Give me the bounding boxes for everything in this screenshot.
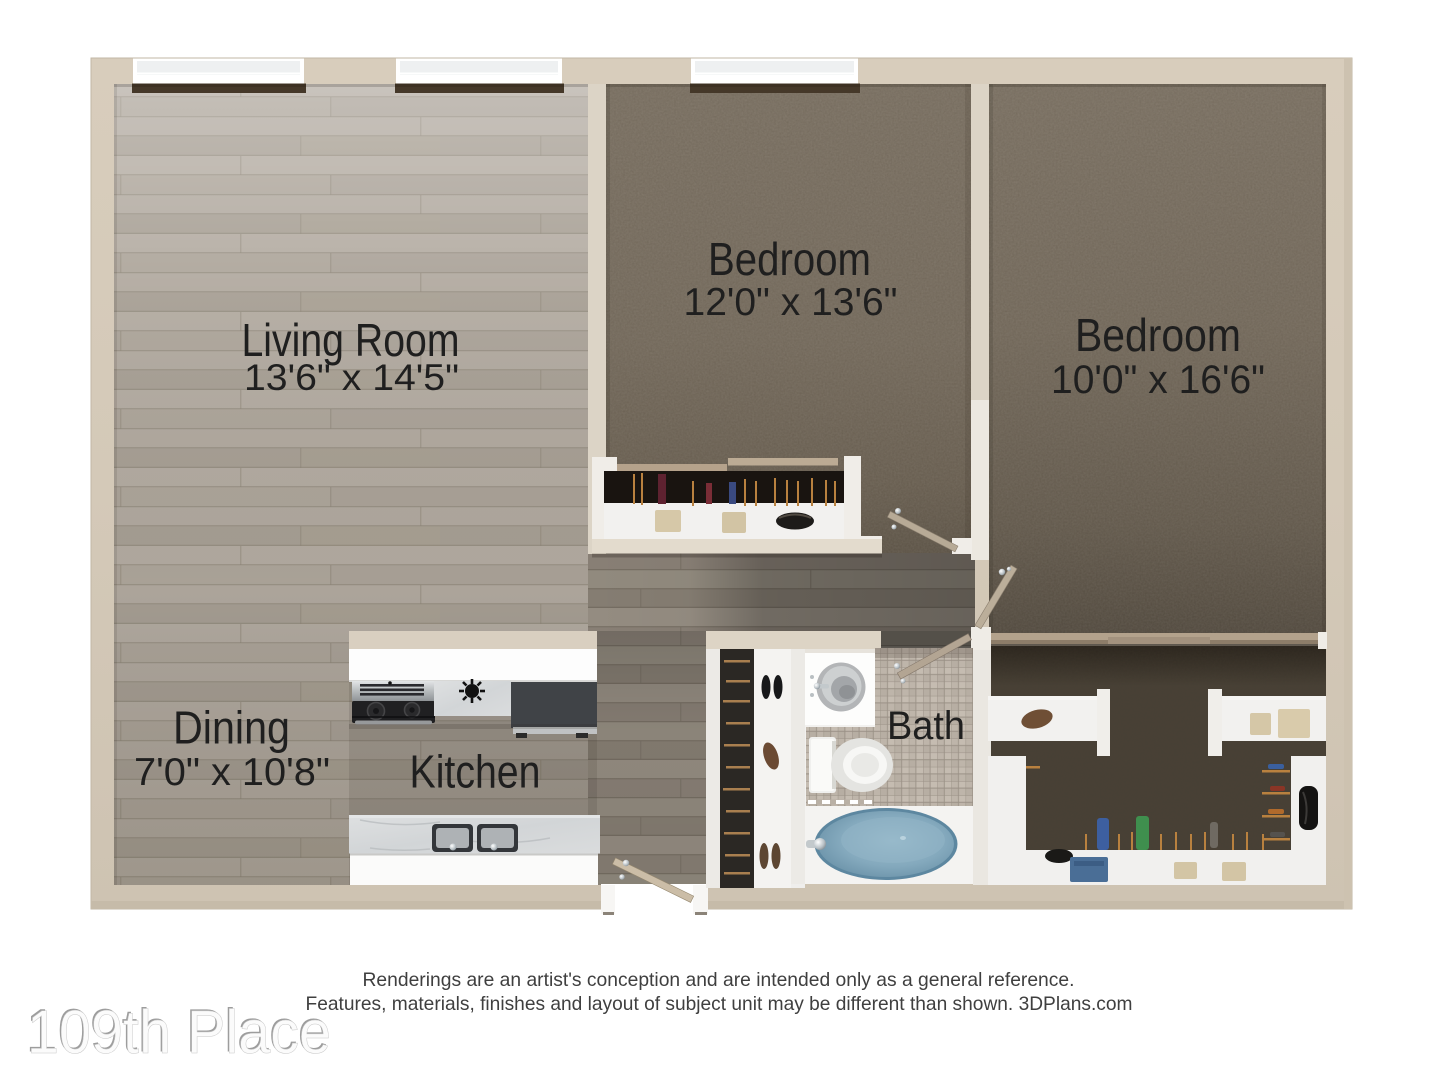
- svg-text:10'0" x 16'6": 10'0" x 16'6": [1051, 358, 1265, 402]
- svg-text:Dining: Dining: [173, 702, 290, 754]
- svg-text:Bedroom: Bedroom: [708, 233, 871, 285]
- svg-text:Kitchen: Kitchen: [410, 746, 541, 798]
- svg-text:7'0" x 10'8": 7'0" x 10'8": [134, 751, 330, 794]
- svg-text:12'0" x 13'6": 12'0" x 13'6": [684, 281, 898, 324]
- svg-text:Features, materials, finishes: Features, materials, finishes and layout…: [306, 993, 1133, 1015]
- svg-text:109th Place: 109th Place: [27, 998, 331, 1066]
- svg-text:Bath: Bath: [887, 704, 965, 748]
- svg-text:13'6" x 14'5": 13'6" x 14'5": [244, 357, 459, 398]
- svg-text:Bedroom: Bedroom: [1075, 309, 1241, 361]
- svg-text:Renderings are an artist's con: Renderings are an artist's conception an…: [363, 969, 1075, 991]
